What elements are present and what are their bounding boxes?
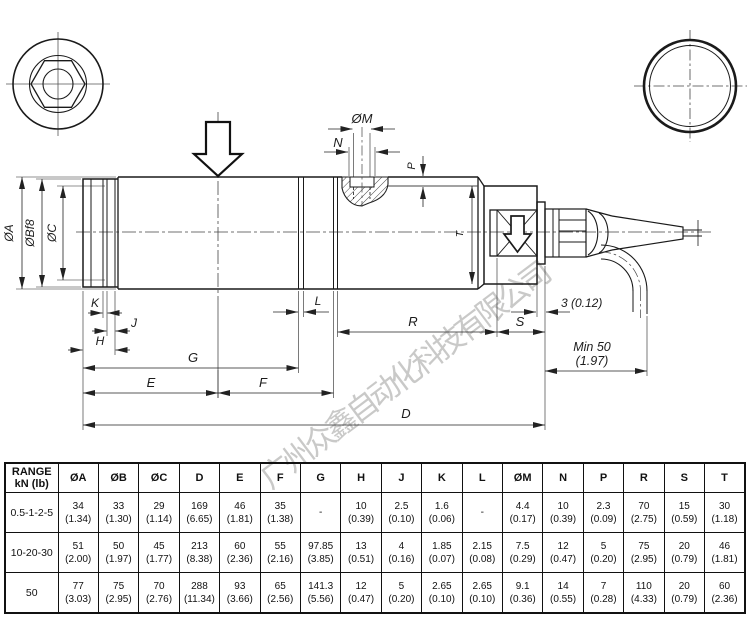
table-cell: 1.85(0.07) [422,533,462,573]
table-cell: 60(2.36) [220,533,260,573]
range-cell: 0.5-1-2-5 [5,493,58,533]
table-cell: 12(0.47) [341,573,381,614]
table-cell: 2.15(0.08) [462,533,502,573]
table-cell: 213(8.38) [179,533,219,573]
table-cell: 65(2.56) [260,573,300,614]
dim-label-p: P [406,162,418,170]
table-header-row: RANGE kN (lb) ØA ØB ØC D E F G H J K L Ø… [5,463,745,493]
left-end-view [6,32,110,136]
table-cell: 12(0.47) [543,533,583,573]
header-g: G [300,463,340,493]
dimensions [16,129,647,430]
technical-drawing: ØA ØBf8 ØC ØM N P T K J H L G E F D R S … [0,0,750,462]
table-cell: 2.65(0.10) [462,573,502,614]
header-f: F [260,463,300,493]
table-cell: 51(2.00) [58,533,98,573]
table-cell: 2.65(0.10) [422,573,462,614]
dim-label-f: F [259,375,268,390]
header-k: K [422,463,462,493]
table-cell: 9.1(0.36) [502,573,542,614]
dim-label-r: R [408,314,417,329]
table-cell: - [462,493,502,533]
table-cell: 7(0.28) [583,573,623,614]
dim-label-flange: 3 (0.12) [561,296,602,310]
table-cell: 55(2.16) [260,533,300,573]
table-cell: 4(0.16) [381,533,421,573]
table-cell: 2.3(0.09) [583,493,623,533]
table-cell: 30(1.18) [705,493,746,533]
table-cell: 46(1.81) [220,493,260,533]
header-s: S [664,463,704,493]
header-t: T [705,463,746,493]
table-cell: 29(1.14) [139,493,179,533]
cable [601,216,702,318]
header-j: J [381,463,421,493]
header-dia-c: ØC [139,463,179,493]
table-cell: 70(2.75) [624,493,664,533]
table-cell: 10(0.39) [341,493,381,533]
table-cell: 77(3.03) [58,573,98,614]
header-n: N [543,463,583,493]
table-cell: 20(0.79) [664,533,704,573]
cable-gland [545,209,612,257]
table-cell: 20(0.79) [664,573,704,614]
table-cell: 15(0.59) [664,493,704,533]
right-end-view [634,30,747,142]
table-cell: 13(0.51) [341,533,381,573]
dim-label-n: N [333,135,343,150]
table-cell: 93(3.66) [220,573,260,614]
table-cell: 5(0.20) [381,573,421,614]
dim-label-dia-a: ØA [2,224,16,242]
header-h: H [341,463,381,493]
dim-label-g: G [188,350,198,365]
dim-label-s: S [516,314,525,329]
dim-label-k: K [91,296,100,310]
header-l: L [462,463,502,493]
load-arrow [194,122,242,176]
table-cell: 141.3(5.56) [300,573,340,614]
dim-label-j: J [130,316,138,330]
table-row: 50 77(3.03) 75(2.95) 70(2.76) 288(11.34)… [5,573,745,614]
table-cell: 110(4.33) [624,573,664,614]
dim-label-d: D [401,406,410,421]
dim-label-dia-m: ØM [351,111,373,126]
table-row: 0.5-1-2-5 34(1.34) 33(1.30) 29(1.14) 169… [5,493,745,533]
table-cell: 35(1.38) [260,493,300,533]
table-cell: 75(2.95) [624,533,664,573]
range-cell: 10-20-30 [5,533,58,573]
dim-label-min-bend-1: Min 50 [573,340,611,354]
table-cell: 14(0.55) [543,573,583,614]
dim-label-dia-c: ØC [45,224,59,243]
table-cell: 7.5(0.29) [502,533,542,573]
table-cell: 75(2.95) [98,573,138,614]
table-cell: 5(0.20) [583,533,623,573]
header-dia-a: ØA [58,463,98,493]
dim-label-min-bend-2: (1.97) [576,354,609,368]
dim-label-h: H [96,334,105,348]
header-r: R [624,463,664,493]
load-cell-datasheet: 广州众鑫自动化科技有限公司 [0,0,750,619]
dim-label-e: E [147,375,156,390]
header-dia-b: ØB [98,463,138,493]
table-cell: 45(1.77) [139,533,179,573]
table-cell: 33(1.30) [98,493,138,533]
dim-label-t: T [454,229,466,237]
side-view-body [76,112,714,398]
table-row: 10-20-30 51(2.00) 50(1.97) 45(1.77) 213(… [5,533,745,573]
header-range: RANGE kN (lb) [5,463,58,493]
table-cell: 288(11.34) [179,573,219,614]
dim-label-dia-b: ØBf8 [23,219,37,248]
table-cell: 4.4(0.17) [502,493,542,533]
table-cell: - [300,493,340,533]
header-dia-m: ØM [502,463,542,493]
table-cell: 60(2.36) [705,573,746,614]
table-cell: 70(2.76) [139,573,179,614]
table-cell: 50(1.97) [98,533,138,573]
range-cell: 50 [5,573,58,614]
table-cell: 97.85(3.85) [300,533,340,573]
table-cell: 169(6.65) [179,493,219,533]
dim-label-l: L [315,294,322,308]
table-cell: 2.5(0.10) [381,493,421,533]
dimension-spec-table: RANGE kN (lb) ØA ØB ØC D E F G H J K L Ø… [4,462,746,614]
header-p: P [583,463,623,493]
table-cell: 1.6(0.06) [422,493,462,533]
table-cell: 10(0.39) [543,493,583,533]
header-e: E [220,463,260,493]
table-cell: 46(1.81) [705,533,746,573]
header-d: D [179,463,219,493]
table-cell: 34(1.34) [58,493,98,533]
